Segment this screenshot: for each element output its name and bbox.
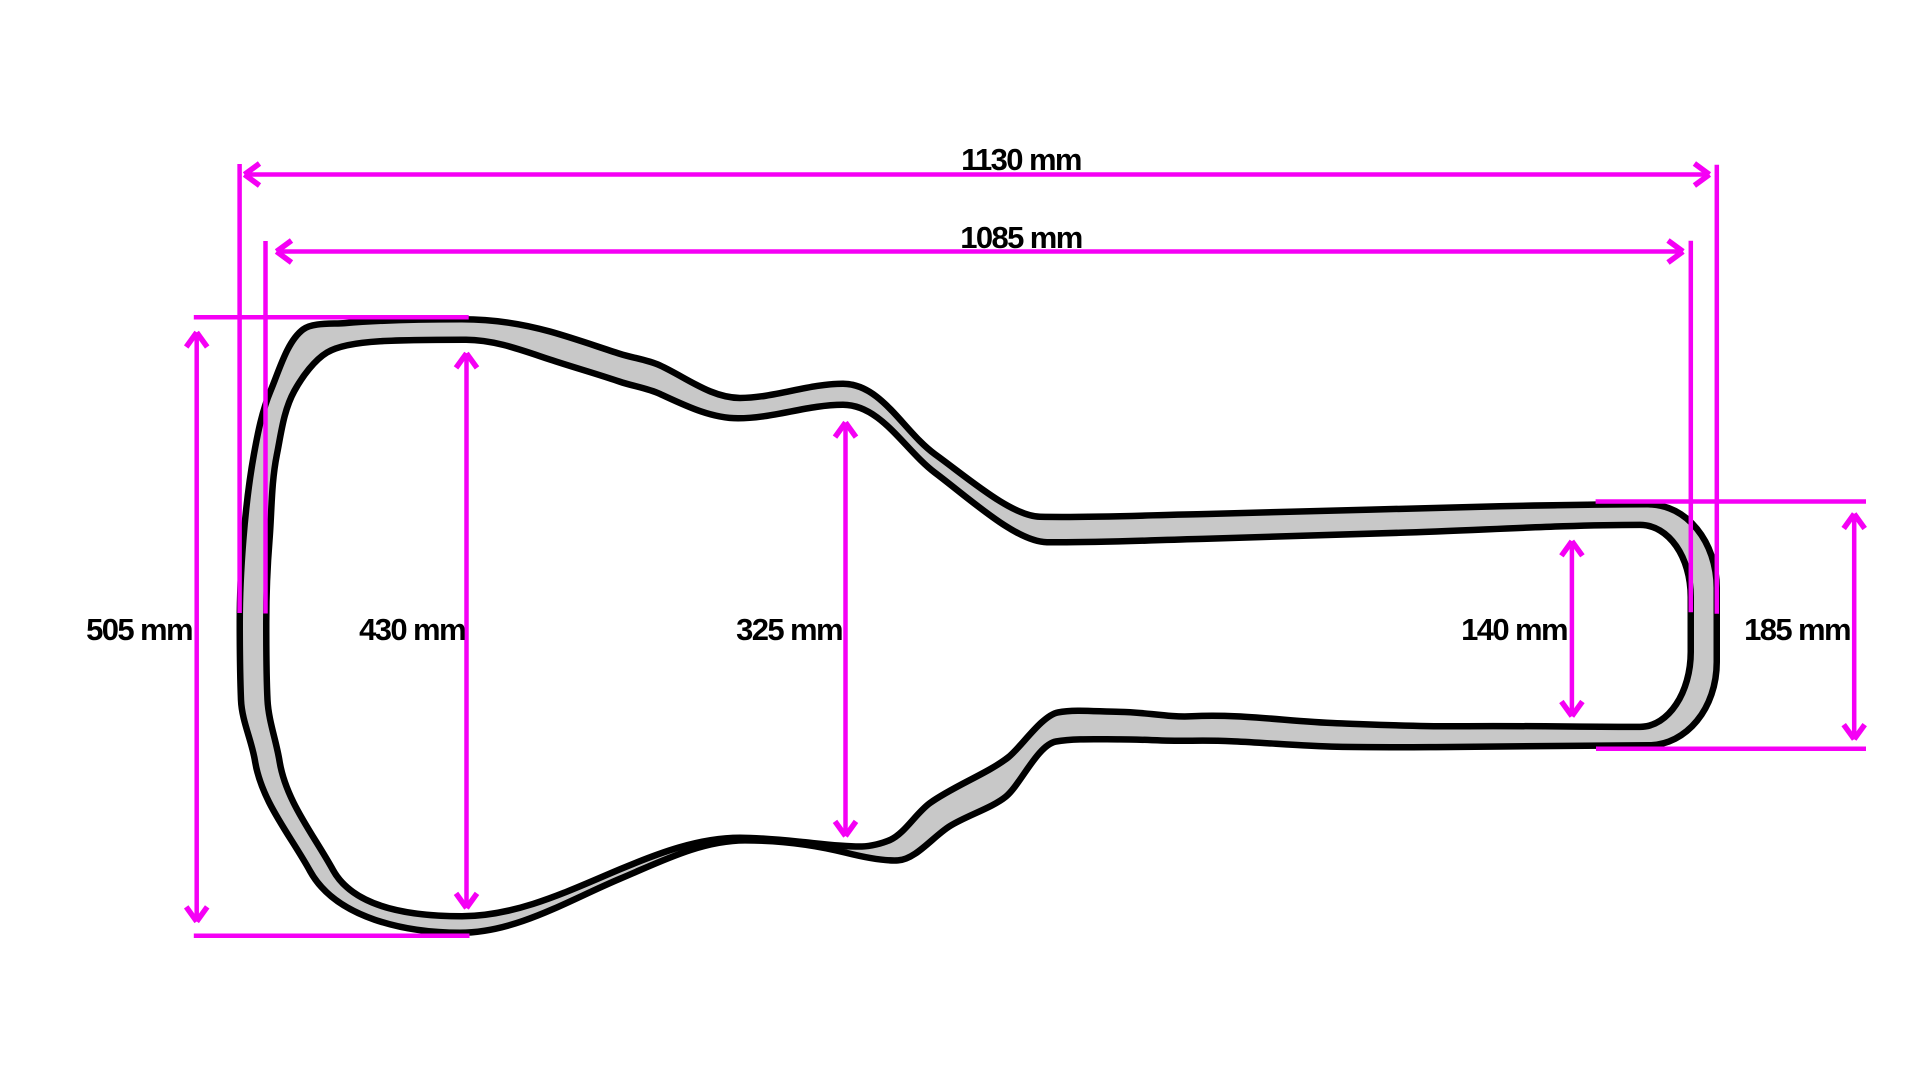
svg-text:1130 mm: 1130 mm (961, 142, 1081, 177)
svg-text:185 mm: 185 mm (1744, 612, 1850, 647)
svg-text:140 mm: 140 mm (1461, 612, 1567, 647)
svg-text:430 mm: 430 mm (359, 612, 465, 647)
svg-text:505 mm: 505 mm (86, 612, 192, 647)
svg-text:325 mm: 325 mm (736, 612, 842, 647)
svg-text:1085 mm: 1085 mm (960, 220, 1082, 255)
